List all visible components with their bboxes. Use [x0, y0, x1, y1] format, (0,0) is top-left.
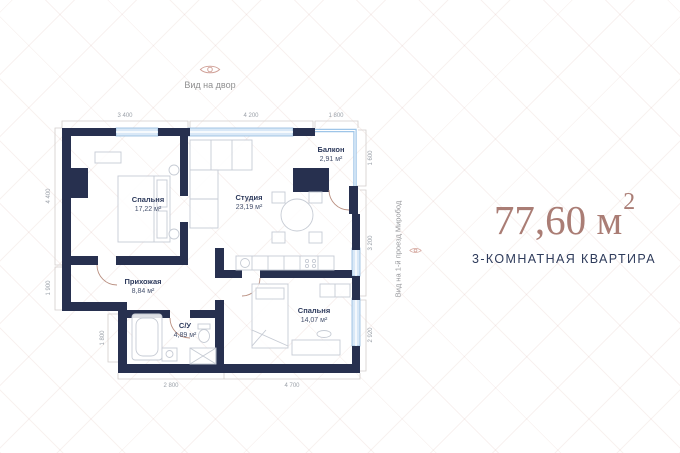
bed-bedroom-2	[252, 284, 288, 348]
eye-icon	[199, 62, 221, 80]
dimension-label: 3 200	[368, 235, 374, 250]
dimension-label: 4 200	[243, 113, 258, 119]
toilet	[198, 324, 210, 329]
room-label-hallway: Прихожая 8,84 м²	[124, 277, 161, 297]
room-label-bedroom-1: Спальня 17,22 м²	[132, 195, 164, 215]
total-area: 77,60 м2	[448, 198, 680, 243]
dimension-label: 4 700	[284, 383, 299, 389]
dimension-label: 2 800	[163, 383, 178, 389]
dresser	[95, 152, 121, 163]
room-label-balcony: Балкон 2,91 м²	[317, 145, 344, 165]
dimension-label: 1 900	[46, 280, 52, 295]
apartment-type: 3-КОМНАТНАЯ КВАРТИРА	[448, 252, 680, 266]
room-label-studio: Студия 23,19 м²	[235, 193, 262, 213]
dimension-label: 1 800	[100, 330, 106, 345]
room-label-bedroom-2: Спальня 14,07 м²	[298, 306, 330, 326]
dimension-label: 3 400	[117, 113, 132, 119]
dimension-label: 1 800	[328, 113, 343, 119]
sofa	[190, 140, 252, 228]
kitchen-counter	[236, 256, 334, 270]
apartment-summary: 77,60 м2 3-КОМНАТНАЯ КВАРТИРА	[448, 198, 680, 266]
dining-table	[272, 192, 322, 243]
desk	[292, 331, 340, 356]
area-superscript: 2	[623, 189, 635, 215]
courtyard-view-label: Вид на двор	[184, 80, 235, 90]
eye-icon-right	[409, 241, 422, 259]
nightstand	[169, 229, 179, 239]
door-balcony	[329, 190, 349, 210]
nightstand	[169, 165, 179, 175]
kitchen-sink	[241, 259, 250, 268]
room-label-bathroom: С/У 4,89 м²	[174, 321, 197, 341]
dimension-label: 1 600	[368, 150, 374, 165]
dimension-label: 4 400	[46, 188, 52, 203]
street-view-label: Вид на 1-й проезд Миробод	[394, 201, 403, 298]
wardrobe	[320, 284, 350, 297]
dimension-label: 2 920	[368, 327, 374, 342]
page: { "views": { "top_label": "Вид на двор",…	[0, 0, 680, 453]
door-bedroom-1	[97, 265, 117, 285]
